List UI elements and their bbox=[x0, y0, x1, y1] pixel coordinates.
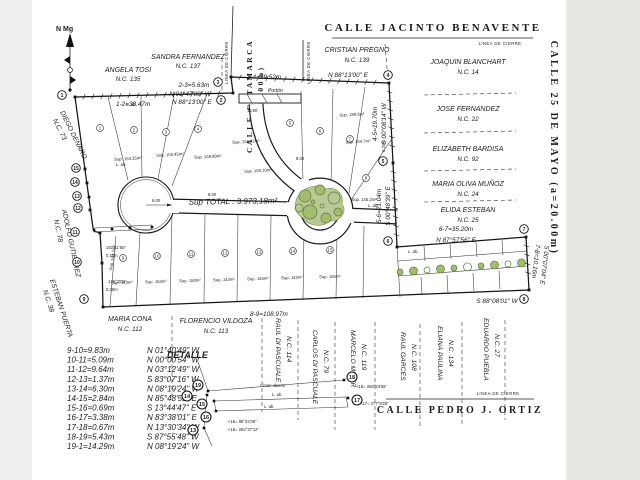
neighbor-nc: N.C. 119 bbox=[360, 344, 367, 371]
survey-point-number: 8 bbox=[523, 297, 526, 303]
dim-seg: 2-3=5.63m bbox=[178, 82, 210, 89]
catamarca-left-line bbox=[231, 6, 233, 76]
tree-icon bbox=[451, 265, 457, 271]
survey-point-number: 6 bbox=[387, 239, 390, 245]
course-bearing: N 03°12'49" W bbox=[147, 365, 200, 374]
tree-icon bbox=[505, 261, 511, 267]
detail-point-number: 19 bbox=[195, 383, 201, 389]
dim-bearing: S 00°48'39" E bbox=[384, 186, 392, 226]
lot-area-label: Sup. 145.2m² bbox=[351, 197, 377, 202]
detail-point-dot bbox=[203, 427, 206, 430]
scan-margin-right bbox=[566, 0, 640, 480]
tree-icon bbox=[437, 265, 445, 273]
course-bearing: S 13°44'47" E bbox=[147, 404, 197, 413]
course-seg: 12-13=1.37m bbox=[67, 375, 115, 384]
lot-number: 12 bbox=[223, 251, 228, 256]
survey-point-dot bbox=[99, 232, 102, 235]
lot-area-label: Sup. 153.25m² bbox=[114, 155, 142, 161]
lot-area-label: Sup. 143m² bbox=[213, 277, 235, 283]
neighbor-name: ELIZABETH BARDISA bbox=[433, 146, 504, 153]
linea-de-cierre-bottom: LINEA DE CIERRE bbox=[477, 391, 520, 396]
neighbor-nc: N.C. 79 bbox=[322, 350, 329, 373]
north-arrow: N Mg bbox=[56, 26, 76, 92]
detail-angle: <17= 277°8'25" bbox=[360, 401, 389, 406]
dim-bearing: S 00°08'14" W bbox=[380, 102, 388, 144]
radius-label: 6.00 bbox=[152, 198, 161, 203]
lot-number: 11 bbox=[189, 252, 194, 257]
neighbor-nc: N.C. 78 bbox=[52, 219, 64, 243]
courses-table: 9-10=9.83mN 01°40'49" W10-11=5.09mN 00°0… bbox=[67, 346, 200, 451]
dim-seg: 8-9=108.97m bbox=[250, 311, 289, 318]
course-bearing: N 83°38'01" E bbox=[147, 413, 197, 422]
neighbor-name: ELIDA ESTEBAN bbox=[441, 207, 497, 214]
neighbor-name: ADOLFO GUTIERREZ bbox=[60, 208, 82, 279]
spur-point-dot bbox=[111, 228, 114, 231]
lot-area-label: Sup. 153m² bbox=[145, 279, 167, 285]
dim-bearing: N 01°47'00" W bbox=[169, 90, 212, 98]
gate-bar bbox=[239, 94, 301, 103]
neighbor-name: CARLOS DI PASCUALE bbox=[311, 330, 318, 405]
neighbor-name: MARIA CONA bbox=[108, 316, 152, 323]
road-width-label: 8.00 bbox=[208, 192, 217, 197]
survey-point-dot bbox=[102, 306, 105, 309]
tree-icon bbox=[478, 263, 484, 269]
course-bearing: S 83°07'16" W bbox=[147, 375, 200, 384]
survey-point-number: 5 bbox=[382, 159, 385, 165]
lot-area-label: Sup. 142m² bbox=[281, 275, 303, 281]
course-bearing: N 08°19'24" W bbox=[147, 442, 200, 451]
detail-angle: <16= 262°37'12" bbox=[228, 427, 259, 432]
street-name-right: CALLE 25 DE MAYO (a=20.00m) bbox=[548, 41, 559, 256]
lot-area-label: Sup. 150.45m² bbox=[156, 151, 184, 157]
detail-point-number: 16 bbox=[203, 415, 209, 421]
spur-point-dot bbox=[129, 227, 132, 230]
neighbor-nc: N.C. 112 bbox=[118, 326, 143, 333]
course-seg: 18-19=5.43m bbox=[67, 432, 115, 441]
neighbor-name: ANGELA TOSI bbox=[104, 67, 151, 74]
gate-label: Portón bbox=[268, 88, 283, 94]
survey-point-number: 4 bbox=[387, 73, 390, 79]
linea-de-cierre-catamarca-left: LINEA DE CIERRE bbox=[224, 41, 229, 84]
course-seg: 14-15=2.84m bbox=[67, 394, 115, 403]
neighbor-nc: N.C. 114 bbox=[285, 336, 292, 363]
course-seg: 11-12=9.64m bbox=[67, 365, 114, 374]
l-ab-label: L. ab. bbox=[126, 102, 136, 107]
detalle-title: DETALLE bbox=[167, 350, 209, 360]
tree-icon bbox=[397, 269, 403, 275]
detail-point-dot bbox=[215, 410, 218, 413]
lot-area-label: Sup. 145m² bbox=[247, 276, 269, 282]
survey-point-dot bbox=[392, 162, 395, 165]
survey-point-dot bbox=[528, 289, 531, 292]
tree-icon bbox=[299, 190, 311, 202]
survey-point-dot bbox=[84, 168, 87, 171]
survey-point-number: 7 bbox=[523, 227, 526, 233]
survey-point-number: 13 bbox=[74, 194, 80, 200]
street-name-top: CALLE JACINTO BENAVENTE bbox=[324, 22, 541, 34]
survey-point-number: 3 bbox=[217, 80, 220, 86]
survey-point-dot bbox=[86, 182, 89, 185]
neighbor-name: EDUARDO PUEBLA bbox=[482, 318, 489, 381]
road-width-label: 8.00 bbox=[296, 156, 305, 161]
neighbor-nc: N.C. 113 bbox=[204, 328, 229, 335]
tree-icon bbox=[311, 200, 315, 204]
dim-seg: 6-7=35.20m bbox=[439, 226, 474, 233]
survey-point-dot bbox=[89, 209, 92, 212]
neighbor-nc: N.C. 134 bbox=[447, 340, 454, 367]
neighbor-name: FLORENCIO VILDOZA bbox=[180, 318, 253, 325]
dim-bearing: N 88°13'00" E bbox=[172, 98, 213, 106]
street-name-bottom: CALLE PEDRO J. ORTIZ bbox=[377, 405, 543, 416]
survey-point-number: 15 bbox=[73, 166, 79, 172]
tree-icon bbox=[464, 263, 472, 271]
sup-total-label: Sup TOTAL : 3.973,18m² bbox=[189, 196, 278, 207]
l-ab-label: L. ab. bbox=[272, 392, 282, 397]
neighbor-name: JOSE FERNANDEZ bbox=[435, 106, 500, 113]
dim-bearing: N 87°57'56" E bbox=[436, 236, 477, 244]
spur-point-dot bbox=[93, 229, 96, 232]
l-ab-label: L. ab. bbox=[264, 404, 274, 409]
course-seg: 16-17=3.38m bbox=[67, 413, 115, 422]
linea-de-cierre-catamarca-right: LINEA DE CIERRE bbox=[306, 41, 311, 84]
dim-seg: 7-8=10.16m bbox=[530, 244, 541, 280]
detail-point-dot bbox=[343, 379, 346, 382]
lot-area-label: Sup. 156.72m² bbox=[232, 138, 260, 144]
dim-seg: 4-5=19.70m bbox=[372, 106, 379, 141]
survey-point-number: 12 bbox=[75, 206, 81, 212]
lot-number: 15 bbox=[328, 248, 333, 253]
neighbor-nc: N.C. 108 bbox=[410, 344, 417, 371]
survey-point-dot bbox=[232, 92, 235, 95]
lot-area-label: Sup. 165m² bbox=[319, 274, 341, 280]
tree-icon bbox=[410, 267, 418, 275]
survey-point-dot bbox=[74, 96, 77, 99]
lot-area-label: Sup. 154.7m² bbox=[345, 138, 371, 144]
neighbor-nc: N.C. 25 bbox=[457, 217, 479, 224]
neighbor-name: MARIA OLIVA MUÑOZ bbox=[432, 179, 504, 188]
tree-icon bbox=[315, 185, 325, 195]
survey-point-dot bbox=[396, 246, 399, 249]
neighbor-name: RAUL DI PASCUALE bbox=[274, 318, 281, 383]
lot-area-label: Sup. 140m² bbox=[111, 280, 133, 286]
lot-area-label: Sup. 150m² bbox=[179, 278, 201, 284]
lot-number: 14 bbox=[291, 249, 296, 254]
survey-point-dot bbox=[88, 196, 91, 199]
l-ab-label: L. ab. bbox=[368, 203, 378, 208]
tree-icon bbox=[518, 259, 526, 267]
course-seg: 13-14=6.30m bbox=[67, 384, 115, 393]
edge-dist-label: 0.20m bbox=[106, 287, 118, 292]
detail-angle: <18= 258°23'55" bbox=[356, 384, 387, 389]
linea-de-cierre-top: LINEA DE CIERRE bbox=[479, 41, 522, 46]
edge-dist-label: 0.25m bbox=[381, 140, 386, 152]
lot-number: 10 bbox=[155, 254, 160, 259]
survey-point-number: 9 bbox=[83, 297, 86, 303]
neighbor-nc: N.C. 139 bbox=[345, 57, 370, 64]
neighbor-nc: N.C. 14 bbox=[457, 69, 479, 76]
survey-point-number: 14 bbox=[72, 180, 78, 186]
neighbor-name: SANDRA FERNANDEZ bbox=[151, 54, 225, 61]
detail-point-dot bbox=[213, 400, 216, 403]
detail-point-number: 17 bbox=[354, 398, 360, 404]
dim-bearing: S 88°08'01" W bbox=[476, 297, 518, 305]
lot-number: 13 bbox=[257, 250, 262, 255]
detail-point-dot bbox=[206, 394, 209, 397]
neighbor-nc: N.C. 92 bbox=[457, 156, 479, 163]
plat-drawing: CALLE JACINTO BENAVENTE LINEA DE CIERRE … bbox=[0, 0, 640, 480]
limite-abierto-label: Límite abierto bbox=[260, 383, 286, 388]
lot-area-label: Sup. 190.5m² bbox=[339, 111, 365, 117]
l-ab-label: L. ab. bbox=[408, 249, 418, 254]
north-arrowhead bbox=[66, 33, 74, 47]
survey-point-dot bbox=[101, 262, 104, 265]
course-seg: 10-11=5.09m bbox=[67, 356, 114, 365]
survey-point-number: 11 bbox=[72, 230, 78, 236]
detail-point-number: 18 bbox=[349, 375, 355, 381]
neighbor-nc: N.C. 24 bbox=[457, 191, 479, 198]
north-label: N Mg bbox=[56, 26, 73, 33]
lot-area-label: Sup. 150.10m² bbox=[244, 167, 272, 173]
tree-icon bbox=[424, 267, 430, 273]
plat-sheet: CALLE JACINTO BENAVENTE LINEA DE CIERRE … bbox=[0, 0, 640, 480]
neighbor-name: ELIANA PAULINA bbox=[436, 326, 443, 381]
tree-icon bbox=[303, 205, 317, 219]
course-seg: 17-18=0.67m bbox=[67, 423, 115, 432]
survey-point-dot bbox=[388, 82, 391, 85]
tree-icon bbox=[321, 213, 331, 223]
survey-point-dot bbox=[230, 76, 233, 79]
neighbor-nc: N.C. 27 bbox=[493, 334, 500, 357]
survey-point-dot bbox=[525, 236, 528, 239]
course-bearing: N 08°19'24" W bbox=[147, 384, 200, 393]
neighbor-name: RAUL GARCES bbox=[399, 332, 406, 381]
detail-point-number: 13 bbox=[190, 428, 196, 434]
scan-margin-left bbox=[0, 0, 32, 480]
course-seg: 19-1=14.29m bbox=[67, 442, 115, 451]
tree-icon bbox=[491, 261, 499, 269]
neighbor-nc: N.C. 137 bbox=[176, 63, 201, 70]
tree-icon bbox=[334, 208, 342, 216]
survey-point-number: 1 bbox=[61, 93, 64, 99]
detail-angle: <15= 98°33'36" bbox=[228, 419, 257, 424]
dim-bearing: N 88°13'00" E bbox=[328, 71, 369, 79]
course-seg: 15-16=0.69m bbox=[67, 404, 115, 413]
dim-seg: 3-4=39.52m bbox=[247, 74, 282, 81]
neighbor-nc: N.C. 22 bbox=[457, 116, 479, 123]
spur-point-dot bbox=[151, 226, 154, 229]
course-seg: 9-10=9.83m bbox=[67, 346, 110, 355]
detail-point-dot bbox=[347, 397, 350, 400]
survey-point-number: 10 bbox=[74, 260, 80, 266]
neighbor-name: JOAQUIN BLANCHART bbox=[429, 59, 506, 66]
neighbor-name: CRISTIAN PREGNO bbox=[325, 47, 391, 54]
lot-area-label: Sup. 159.80m² bbox=[194, 153, 222, 159]
road-entrance bbox=[256, 104, 302, 188]
neighbor-nc: N.C. 135 bbox=[116, 76, 141, 83]
detail-point-number: 14 bbox=[184, 394, 191, 400]
gate-width: 16.00 bbox=[247, 108, 258, 113]
detail-point-number: 15 bbox=[199, 402, 205, 408]
detail-point-dot bbox=[207, 390, 210, 393]
survey-point-number: 2 bbox=[220, 98, 223, 104]
l-ab-label: L. ab. bbox=[116, 162, 126, 167]
